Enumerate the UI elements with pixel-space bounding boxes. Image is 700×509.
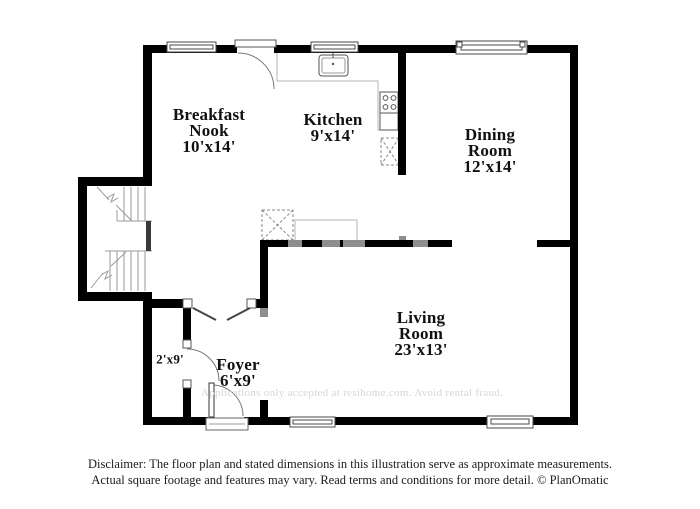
stove (380, 92, 398, 130)
door-breakfast-nook-exterior (235, 40, 276, 89)
stair-landing-divider (146, 221, 151, 251)
pantry-dashed-box (381, 138, 399, 165)
peninsula-counter (295, 220, 357, 242)
room-name: Living Room (397, 308, 445, 343)
disclaimer-line-1: Disclaimer: The floor plan and stated di… (0, 456, 700, 472)
floorplan-canvas: Breakfast Nook 10'x14' Kitchen 9'x14' Di… (0, 0, 700, 509)
refrigerator-dashed-box (262, 210, 293, 240)
window-breakfast-nook (167, 42, 216, 52)
stair-direction-arrow-up (97, 187, 132, 221)
room-dims: 2'x9' (156, 353, 184, 366)
room-dims: 23'x13' (394, 342, 447, 358)
room-label-living-room: Living Room 23'x13' (394, 294, 447, 374)
french-doors-foyer (183, 299, 256, 320)
room-label-closet: 2'x9' (156, 340, 184, 379)
watermark-text: Applications only accepted at resihome.c… (201, 387, 503, 399)
room-name: Dining Room (465, 125, 515, 160)
window-living-room-left (290, 417, 335, 427)
disclaimer-line-2: Actual square footage and features may v… (0, 472, 700, 488)
room-dims: 12'x14' (463, 159, 516, 175)
room-dims: 10'x14' (173, 139, 245, 155)
room-name: Breakfast Nook (173, 105, 245, 140)
door-foyer-closet (183, 340, 219, 388)
window-living-room-right (487, 416, 533, 428)
floorplan-drawing (0, 0, 700, 509)
window-dining-room (456, 41, 527, 54)
room-label-kitchen: Kitchen 9'x14' (303, 96, 362, 160)
room-label-breakfast-nook: Breakfast Nook 10'x14' (173, 91, 245, 171)
room-label-dining-room: Dining Room 12'x14' (463, 111, 516, 191)
staircase (91, 187, 152, 291)
disclaimer: Disclaimer: The floor plan and stated di… (0, 456, 700, 488)
room-dims: 9'x14' (303, 128, 362, 144)
kitchen-sink (319, 51, 348, 76)
window-kitchen-sink (311, 42, 358, 52)
stair-direction-arrow-down (91, 252, 126, 288)
